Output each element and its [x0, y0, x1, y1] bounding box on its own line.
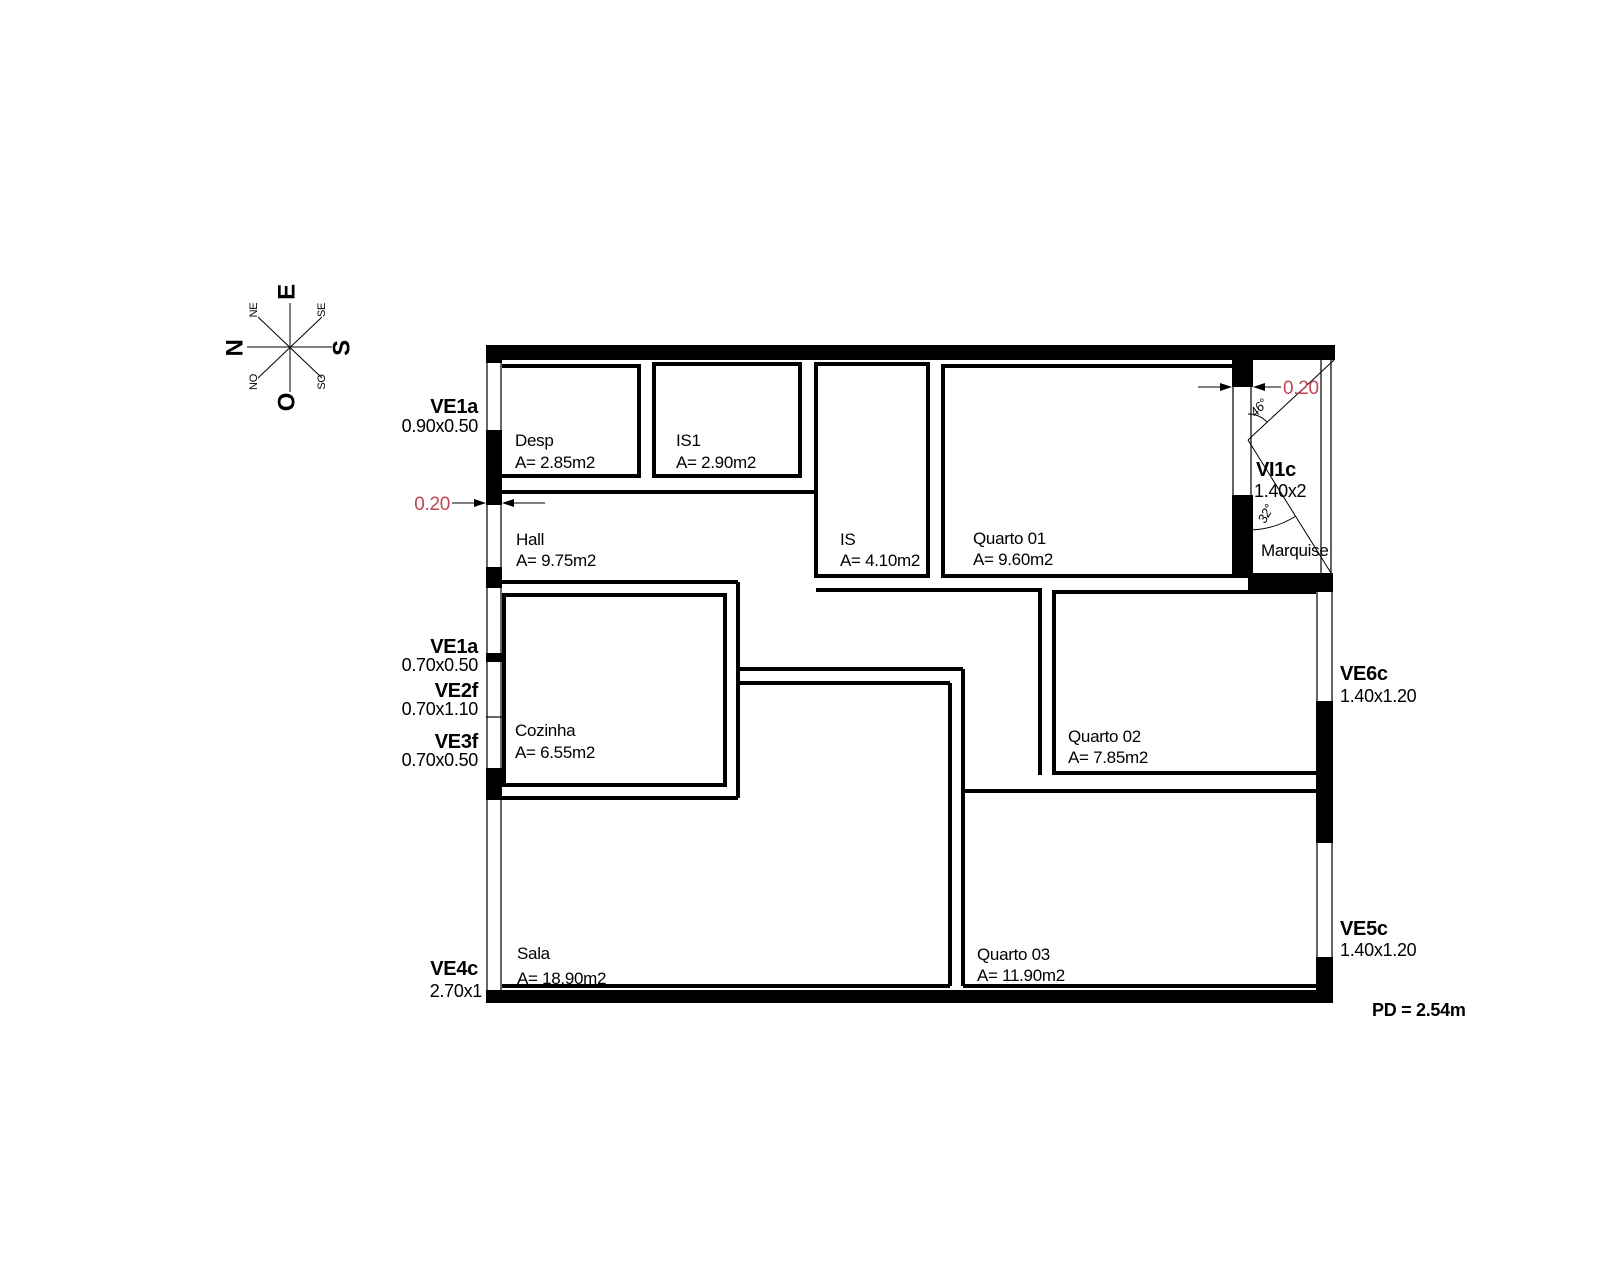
left-wall-dimension: 0.20	[414, 494, 545, 515]
window-lines	[486, 360, 1332, 990]
cozinha-room-name: Cozinha	[515, 721, 576, 740]
ve5c-size-label: 1.40x1.20	[1340, 940, 1417, 960]
is1-room-area: A= 2.90m2	[676, 453, 756, 472]
compass-west-label: O	[273, 393, 300, 411]
compass-east-label: E	[273, 284, 300, 300]
compass-rose: E N S O NE SE NO SO	[221, 284, 355, 411]
ve6c-size-label: 1.40x1.20	[1340, 686, 1417, 706]
is-room-area: A= 4.10m2	[840, 551, 920, 570]
roof-angle-lower-label: 32°	[1255, 502, 1277, 526]
quarto02-room-name: Quarto 02	[1068, 727, 1141, 746]
compass-northeast-label: NE	[248, 303, 260, 318]
ve3f-size-label: 0.70x0.50	[402, 750, 479, 770]
hall-room-name: Hall	[516, 530, 544, 549]
compass-northwest-label: NO	[248, 373, 260, 390]
quarto03-room-name: Quarto 03	[977, 945, 1050, 964]
sala-room-name: Sala	[517, 944, 551, 963]
quarto01-room-area: A= 9.60m2	[973, 550, 1053, 569]
compass-southwest-label: SO	[316, 374, 328, 390]
compass-south-label: S	[328, 340, 355, 356]
cozinha-room-area: A= 6.55m2	[515, 743, 595, 762]
ve6c-code-label: VE6c	[1340, 663, 1388, 685]
ve1a-top-size-label: 0.90x0.50	[402, 416, 479, 436]
is-room-outline	[816, 364, 928, 576]
quarto02-room-area: A= 7.85m2	[1068, 748, 1148, 767]
left-wall-dimension-value: 0.20	[414, 494, 450, 515]
desp-room-area: A= 2.85m2	[515, 453, 595, 472]
sala-room-area: A= 18.90m2	[517, 969, 606, 988]
quarto03-room-area: A= 11.90m2	[977, 966, 1065, 985]
vi1c-code-label: VI1c	[1256, 459, 1296, 481]
marquise-label: Marquise	[1261, 541, 1329, 560]
compass-southeast-label: SE	[316, 303, 328, 317]
ve5c-code-label: VE5c	[1340, 918, 1388, 940]
ceiling-height-note: PD = 2.54m	[1372, 1000, 1466, 1020]
vi1c-size-label: 1.40x2	[1254, 481, 1307, 501]
desp-room-name: Desp	[515, 431, 554, 450]
room-outlines	[487, 364, 1316, 986]
is1-room-name: IS1	[676, 431, 701, 450]
ve1a-top-code-label: VE1a	[430, 396, 479, 418]
right-wall-dimension-value: 0.20	[1283, 378, 1319, 399]
ve4c-code-label: VE4c	[430, 958, 478, 980]
quarto01-room-name: Quarto 01	[973, 529, 1046, 548]
ve4c-size-label: 2.70x1	[430, 981, 483, 1001]
is-room-name: IS	[840, 530, 855, 549]
floor-plan-page: E N S O NE SE NO SO	[0, 0, 1600, 1280]
roof-angle-upper-label: 46°	[1247, 396, 1271, 420]
room-labels: Desp A= 2.85m2 IS1 A= 2.90m2 Hall A= 9.7…	[515, 431, 1329, 988]
floor-plan-drawing: E N S O NE SE NO SO	[0, 0, 1600, 1280]
compass-north-label: N	[221, 339, 248, 356]
outer-walls	[486, 345, 1335, 1003]
ve2f-size-label: 0.70x1.10	[402, 699, 479, 719]
opening-labels: VE1a 0.90x0.50 VE1a 0.70x0.50 VE2f 0.70x…	[402, 396, 1417, 1001]
hall-room-area: A= 9.75m2	[516, 551, 596, 570]
ve1a-mid-size-label: 0.70x0.50	[402, 655, 479, 675]
